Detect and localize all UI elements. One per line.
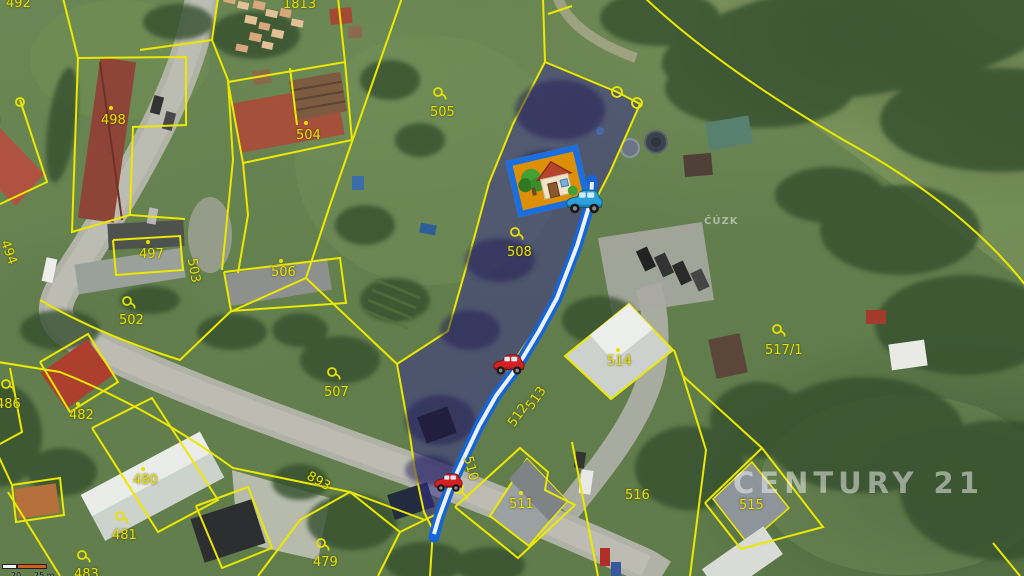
scale-bar-segment-white (2, 564, 17, 569)
parcel-centroid-dot (109, 106, 113, 110)
parcel-centroid-dot (279, 259, 283, 263)
parcel-label-482: 482 (69, 409, 94, 422)
parcel-label-507: 507 (324, 386, 349, 399)
parcel-label-479: 479 (313, 556, 338, 569)
car-marker-red-2[interactable] (433, 471, 463, 499)
parcel-centroid-dot (141, 467, 145, 471)
parcel-marker-icon (121, 295, 139, 311)
parcel-marker-icon (326, 366, 344, 382)
parcel-marker-icon (0, 378, 18, 394)
parcel-label-514: 514 (607, 355, 632, 368)
parcel-label-503: 503 (185, 257, 202, 284)
parcel-centroid-dot (146, 240, 150, 244)
parcel-centroid-dot (304, 121, 308, 125)
map-canvas[interactable]: 4921813049850450550849449750350650248648… (0, 0, 1024, 576)
parcel-label-505: 505 (430, 106, 455, 119)
parcel-label-517-1: 517/1 (765, 344, 802, 357)
car-icon (564, 187, 604, 217)
parcel-marker-icon (315, 537, 333, 553)
parcel-marker-icon (509, 226, 527, 242)
car-icon (492, 352, 525, 378)
parcel-centroid-dot (616, 348, 620, 352)
parcel-centroid-dot (76, 402, 80, 406)
parcel-label-515: 515 (739, 499, 764, 512)
scale-bar-mid-label: 20 (11, 571, 21, 576)
car-icon (433, 471, 463, 495)
parcel-label-486: 486 (0, 398, 21, 411)
parcel-label-516: 516 (625, 489, 650, 502)
parcel-label-502: 502 (119, 314, 144, 327)
scale-bar-end-label: 25 m (34, 571, 55, 576)
scale-bar-segment-orange (17, 564, 47, 569)
parcel-label-511: 511 (509, 498, 534, 511)
parcel-marker-icon (432, 86, 450, 102)
car-marker-red-1[interactable] (492, 352, 525, 382)
parcel-label-498: 498 (101, 114, 126, 127)
parcel-label-506: 506 (271, 266, 296, 279)
parcel-label-492: 492 (6, 0, 31, 10)
parcel-label-481: 481 (112, 529, 137, 542)
parcel-marker-icon (771, 323, 789, 339)
car-marker-blue[interactable] (564, 187, 604, 221)
parcel-marker-icon (114, 510, 132, 526)
parcel-label-1813: 1813 (283, 0, 316, 11)
parcel-centroid-dot (519, 491, 523, 495)
parcel-label-497: 497 (139, 248, 164, 261)
parcel-label-504: 504 (296, 129, 321, 142)
scale-bar: 20 25 m (2, 562, 122, 576)
parcel-label-480: 480 (133, 474, 158, 487)
source-watermark: ČÚZK (704, 216, 738, 227)
brand-watermark: CENTURY 21 (733, 466, 984, 500)
parcel-label-508: 508 (507, 246, 532, 259)
